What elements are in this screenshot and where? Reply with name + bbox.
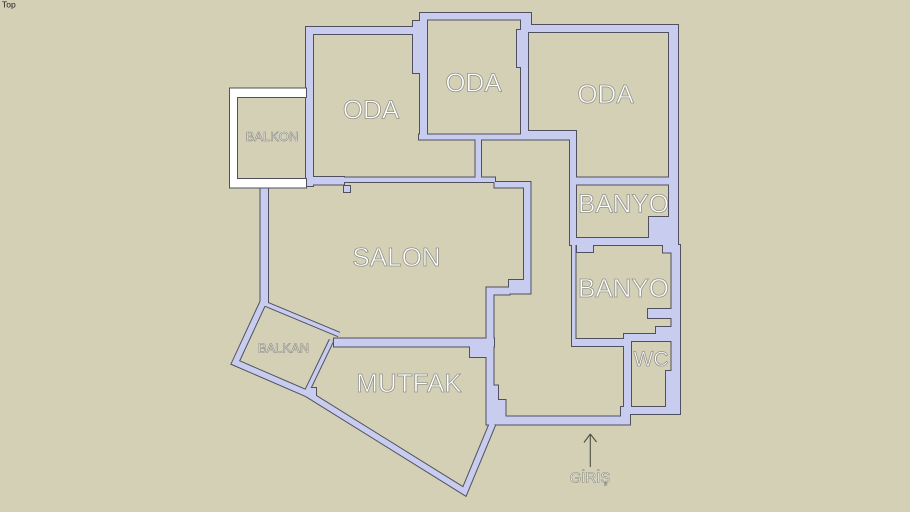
svg-text:BALKON: BALKON <box>246 129 299 144</box>
svg-text:ODA: ODA <box>343 95 400 125</box>
svg-text:MUTFAK: MUTFAK <box>356 368 462 398</box>
svg-text:GİRİŞ: GİRİŞ <box>570 469 611 487</box>
svg-text:SALON: SALON <box>352 242 440 272</box>
svg-text:ODA: ODA <box>445 68 502 98</box>
svg-text:BANYO: BANYO <box>578 273 669 303</box>
svg-text:BALKAN: BALKAN <box>258 340 309 355</box>
svg-text:WC: WC <box>634 348 669 371</box>
svg-text:Top: Top <box>2 0 16 10</box>
svg-text:BANYO: BANYO <box>578 189 669 219</box>
svg-text:ODA: ODA <box>577 79 634 109</box>
